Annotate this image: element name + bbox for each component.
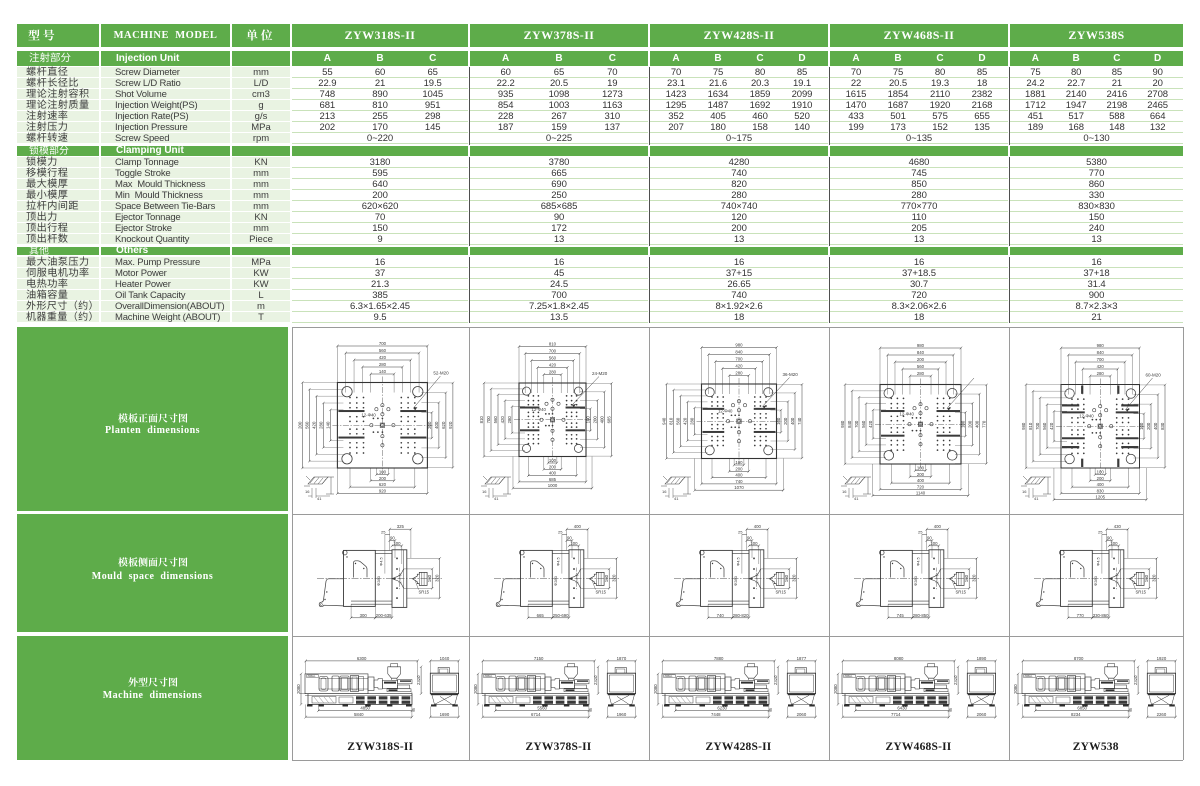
svg-text:90: 90 <box>927 536 932 541</box>
svg-text:700: 700 <box>854 420 859 428</box>
svg-text:560: 560 <box>549 356 557 361</box>
svg-text:400: 400 <box>735 473 743 478</box>
svg-text:12-Φ40: 12-Φ40 <box>361 412 376 417</box>
svg-text:740: 740 <box>797 417 802 425</box>
svg-text:420: 420 <box>1097 364 1105 369</box>
svg-text:200: 200 <box>593 416 598 424</box>
svg-text:8234: 8234 <box>1071 712 1081 717</box>
svg-text:5560: 5560 <box>537 706 547 711</box>
svg-text:430: 430 <box>1114 524 1122 529</box>
svg-text:ZWELL: ZWELL <box>485 675 494 678</box>
svg-text:840: 840 <box>1097 350 1105 355</box>
svg-text:90: 90 <box>747 536 752 541</box>
svg-text:160: 160 <box>604 574 609 582</box>
svg-text:1070: 1070 <box>734 485 744 490</box>
svg-text:8700: 8700 <box>1074 656 1084 661</box>
svg-text:280: 280 <box>1097 371 1105 376</box>
svg-text:60-M20: 60-M20 <box>1146 373 1162 378</box>
svg-text:5840: 5840 <box>354 712 364 717</box>
svg-text:SR15: SR15 <box>596 589 607 594</box>
svg-text:SR15: SR15 <box>419 589 430 594</box>
svg-text:7448: 7448 <box>711 712 721 717</box>
svg-text:325: 325 <box>397 524 405 529</box>
svg-text:6430: 6430 <box>897 706 907 711</box>
svg-text:830: 830 <box>1160 422 1165 430</box>
svg-text:280: 280 <box>735 371 743 376</box>
svg-text:560: 560 <box>917 364 925 369</box>
svg-text:25: 25 <box>738 530 743 535</box>
svg-text:41: 41 <box>494 496 499 501</box>
svg-text:2320: 2320 <box>593 675 598 685</box>
svg-text:Φ280: Φ280 <box>1093 575 1098 586</box>
svg-text:840: 840 <box>917 350 925 355</box>
svg-text:12-Φ40: 12-Φ40 <box>1079 413 1094 418</box>
svg-text:2320: 2320 <box>953 675 958 685</box>
svg-text:830: 830 <box>1097 488 1105 493</box>
svg-text:1040: 1040 <box>440 656 450 661</box>
svg-text:740: 740 <box>717 613 725 618</box>
svg-text:280-850: 280-850 <box>913 613 929 618</box>
svg-text:12-Φ40: 12-Φ40 <box>718 408 733 413</box>
svg-text:100: 100 <box>750 541 758 546</box>
svg-text:620: 620 <box>441 421 446 429</box>
svg-text:160: 160 <box>784 574 789 582</box>
svg-text:400: 400 <box>1153 422 1158 430</box>
svg-text:100: 100 <box>930 541 938 546</box>
svg-text:25: 25 <box>381 530 386 535</box>
svg-text:250-690: 250-690 <box>553 613 569 618</box>
svg-text:8080: 8080 <box>894 656 904 661</box>
svg-text:200: 200 <box>379 476 387 481</box>
svg-text:980: 980 <box>735 343 743 348</box>
svg-text:810: 810 <box>669 417 674 425</box>
svg-text:200: 200 <box>968 420 973 428</box>
svg-text:100: 100 <box>1110 541 1118 546</box>
svg-text:16: 16 <box>482 489 487 494</box>
svg-text:920: 920 <box>379 488 387 493</box>
svg-text:90: 90 <box>412 708 416 712</box>
svg-text:1890: 1890 <box>977 656 987 661</box>
svg-text:420: 420 <box>1049 422 1054 430</box>
svg-text:2320: 2320 <box>416 675 421 685</box>
svg-text:200: 200 <box>917 472 925 477</box>
svg-text:Φ280: Φ280 <box>733 575 738 586</box>
svg-text:41: 41 <box>1034 496 1039 501</box>
svg-text:140: 140 <box>325 421 330 429</box>
svg-text:200: 200 <box>1097 476 1105 481</box>
svg-text:745: 745 <box>897 613 905 618</box>
svg-text:100: 100 <box>735 460 743 465</box>
svg-text:41: 41 <box>317 496 322 501</box>
svg-text:420: 420 <box>683 417 688 425</box>
svg-text:770: 770 <box>1077 613 1085 618</box>
svg-text:320: 320 <box>612 574 617 582</box>
svg-text:2080: 2080 <box>1013 684 1018 694</box>
svg-text:1877: 1877 <box>797 656 807 661</box>
svg-text:Φ280: Φ280 <box>376 575 381 586</box>
svg-text:1960: 1960 <box>617 712 627 717</box>
svg-text:2320: 2320 <box>773 675 778 685</box>
svg-text:90: 90 <box>949 708 953 712</box>
svg-text:100: 100 <box>549 458 557 463</box>
svg-text:200: 200 <box>549 464 557 469</box>
svg-text:41: 41 <box>854 496 859 501</box>
svg-text:100: 100 <box>393 541 401 546</box>
svg-text:400: 400 <box>600 416 605 424</box>
svg-text:Φ4.5: Φ4.5 <box>379 556 384 566</box>
svg-text:280: 280 <box>379 362 387 367</box>
svg-text:2060: 2060 <box>797 712 807 717</box>
svg-text:Φ280: Φ280 <box>913 575 918 586</box>
svg-text:7880: 7880 <box>714 656 724 661</box>
svg-text:41: 41 <box>674 496 679 501</box>
svg-text:420: 420 <box>868 420 873 428</box>
svg-text:100: 100 <box>570 541 578 546</box>
svg-text:200: 200 <box>297 421 302 429</box>
svg-text:SR15: SR15 <box>956 589 967 594</box>
svg-text:200: 200 <box>917 357 925 362</box>
svg-text:560: 560 <box>861 420 866 428</box>
svg-text:16: 16 <box>662 489 667 494</box>
svg-text:2060: 2060 <box>977 712 987 717</box>
svg-text:160: 160 <box>427 574 432 582</box>
svg-text:ZWELL: ZWELL <box>308 675 317 678</box>
svg-text:25: 25 <box>1098 530 1103 535</box>
svg-text:700: 700 <box>1097 357 1105 362</box>
svg-text:400: 400 <box>975 420 980 428</box>
svg-text:1205: 1205 <box>1095 495 1105 500</box>
svg-text:810: 810 <box>549 342 557 347</box>
svg-text:420: 420 <box>311 421 316 429</box>
svg-text:700: 700 <box>486 416 491 424</box>
svg-text:2320: 2320 <box>1133 675 1138 685</box>
svg-text:160: 160 <box>1144 574 1149 582</box>
svg-text:24-M20: 24-M20 <box>592 371 608 376</box>
svg-text:560: 560 <box>676 417 681 425</box>
svg-text:320: 320 <box>1152 574 1157 582</box>
svg-text:25: 25 <box>558 530 563 535</box>
svg-text:ZWELL: ZWELL <box>665 675 674 678</box>
svg-text:2080: 2080 <box>296 684 301 694</box>
svg-text:4850: 4850 <box>360 706 370 711</box>
svg-text:980: 980 <box>1021 422 1026 430</box>
svg-text:100: 100 <box>917 466 925 471</box>
svg-text:920: 920 <box>448 421 453 429</box>
svg-text:140: 140 <box>379 369 387 374</box>
svg-text:25: 25 <box>918 530 923 535</box>
svg-text:300: 300 <box>360 613 368 618</box>
svg-text:ZWELL: ZWELL <box>1025 675 1034 678</box>
svg-text:90: 90 <box>1107 536 1112 541</box>
svg-text:2080: 2080 <box>653 684 658 694</box>
svg-text:Φ4.5: Φ4.5 <box>916 556 921 566</box>
svg-text:Φ4.5: Φ4.5 <box>736 556 741 566</box>
svg-text:2260: 2260 <box>1157 712 1167 717</box>
svg-text:100: 100 <box>379 470 387 475</box>
svg-text:840: 840 <box>735 350 743 355</box>
svg-text:810: 810 <box>1028 422 1033 430</box>
svg-text:980: 980 <box>840 420 845 428</box>
svg-text:400: 400 <box>574 524 582 529</box>
svg-text:2080: 2080 <box>833 684 838 694</box>
svg-text:90: 90 <box>390 536 395 541</box>
svg-text:720: 720 <box>917 484 925 489</box>
svg-text:Φ4.5: Φ4.5 <box>556 556 561 566</box>
svg-text:ZWELL: ZWELL <box>845 675 854 678</box>
svg-text:Φ280: Φ280 <box>553 575 558 586</box>
svg-text:560: 560 <box>493 416 498 424</box>
svg-text:160: 160 <box>964 574 969 582</box>
svg-text:700: 700 <box>549 349 557 354</box>
svg-text:560: 560 <box>304 421 309 429</box>
svg-text:16: 16 <box>1022 489 1027 494</box>
svg-text:1140: 1140 <box>916 491 926 496</box>
svg-text:36-M20: 36-M20 <box>783 372 799 377</box>
svg-text:400: 400 <box>549 471 557 476</box>
svg-text:6714: 6714 <box>531 712 541 717</box>
svg-text:200: 200 <box>1146 422 1151 430</box>
svg-text:200: 200 <box>735 466 743 471</box>
svg-text:700: 700 <box>379 341 387 346</box>
svg-text:940: 940 <box>662 417 667 425</box>
svg-text:400: 400 <box>934 524 942 529</box>
svg-text:SR15: SR15 <box>776 589 787 594</box>
svg-text:420: 420 <box>549 363 557 368</box>
svg-text:SR15: SR15 <box>1136 589 1147 594</box>
svg-text:12-Φ40: 12-Φ40 <box>532 407 547 412</box>
svg-text:560: 560 <box>379 348 387 353</box>
svg-text:685: 685 <box>607 416 612 424</box>
svg-text:7150: 7150 <box>534 656 544 661</box>
svg-text:420: 420 <box>379 355 387 360</box>
svg-text:320: 320 <box>972 574 977 582</box>
svg-text:200-635: 200-635 <box>376 613 392 618</box>
svg-text:620: 620 <box>379 482 387 487</box>
svg-text:1000: 1000 <box>548 483 558 488</box>
svg-text:980: 980 <box>1097 343 1105 348</box>
svg-text:280-820: 280-820 <box>733 613 749 618</box>
svg-text:90: 90 <box>769 708 773 712</box>
svg-text:200: 200 <box>783 417 788 425</box>
svg-text:2080: 2080 <box>473 684 478 694</box>
svg-text:6230: 6230 <box>717 706 727 711</box>
svg-text:280: 280 <box>549 370 557 375</box>
svg-text:1920: 1920 <box>1157 656 1167 661</box>
svg-text:90: 90 <box>589 708 593 712</box>
svg-text:700: 700 <box>735 357 743 362</box>
svg-text:90: 90 <box>567 536 572 541</box>
svg-text:400: 400 <box>434 421 439 429</box>
svg-text:90: 90 <box>1129 708 1133 712</box>
svg-text:685: 685 <box>549 477 557 482</box>
svg-text:560: 560 <box>1042 422 1047 430</box>
svg-text:810: 810 <box>479 416 484 424</box>
svg-text:330-860: 330-860 <box>1093 613 1109 618</box>
svg-text:740: 740 <box>735 479 743 484</box>
svg-text:100: 100 <box>1097 470 1105 475</box>
svg-text:280: 280 <box>917 371 925 376</box>
svg-text:12-Φ40: 12-Φ40 <box>900 411 915 416</box>
svg-text:52-M20: 52-M20 <box>433 371 449 376</box>
svg-text:16: 16 <box>305 489 310 494</box>
svg-text:980: 980 <box>917 343 925 348</box>
svg-text:400: 400 <box>790 417 795 425</box>
svg-text:6850: 6850 <box>1077 706 1087 711</box>
svg-text:1690: 1690 <box>440 712 450 717</box>
svg-text:1870: 1870 <box>617 656 627 661</box>
svg-text:770: 770 <box>982 420 987 428</box>
svg-text:320: 320 <box>792 574 797 582</box>
svg-text:Φ4.5: Φ4.5 <box>1096 556 1101 566</box>
svg-text:420: 420 <box>735 364 743 369</box>
svg-text:400: 400 <box>754 524 762 529</box>
svg-text:700: 700 <box>1035 422 1040 430</box>
svg-text:665: 665 <box>537 613 545 618</box>
svg-text:7714: 7714 <box>891 712 901 717</box>
svg-text:280: 280 <box>690 417 695 425</box>
svg-text:6300: 6300 <box>357 656 367 661</box>
svg-text:400: 400 <box>917 478 925 483</box>
svg-text:420: 420 <box>500 416 505 424</box>
svg-text:280: 280 <box>507 416 512 424</box>
svg-text:320: 320 <box>435 574 440 582</box>
svg-text:400: 400 <box>1097 482 1105 487</box>
svg-text:280: 280 <box>318 421 323 429</box>
svg-text:840: 840 <box>847 420 852 428</box>
svg-text:16: 16 <box>842 489 847 494</box>
